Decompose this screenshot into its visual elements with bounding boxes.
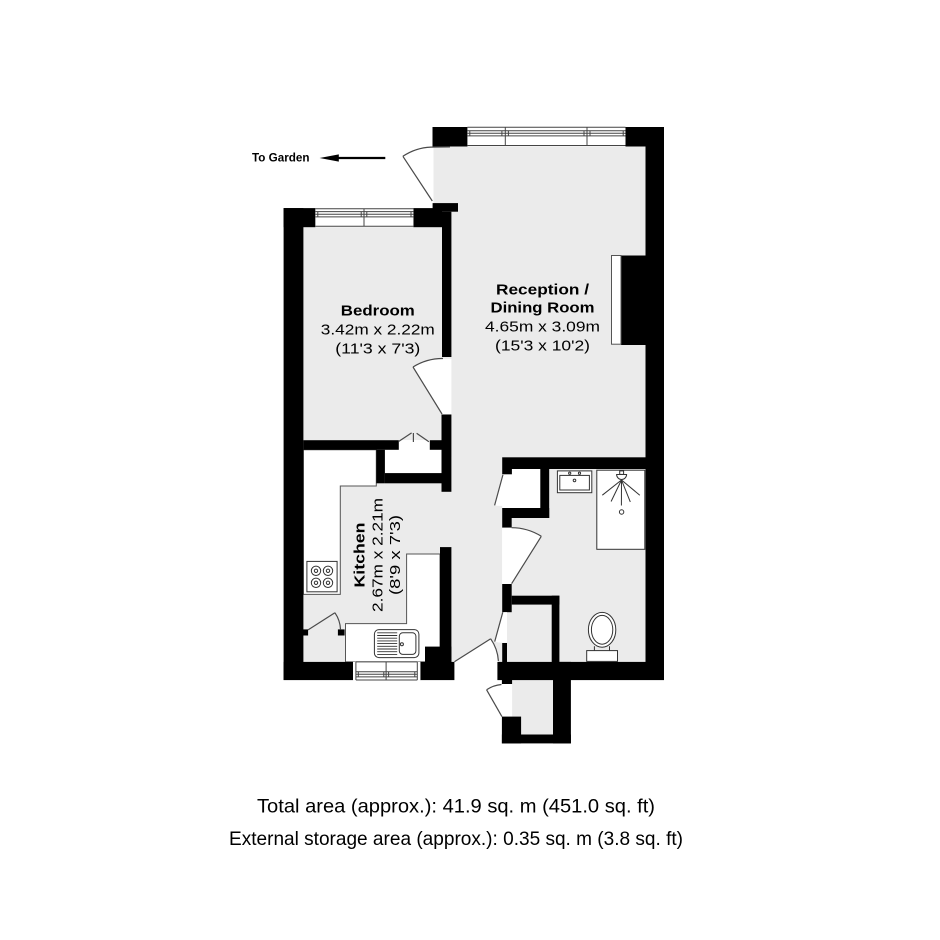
svg-text:(8'9 x 7'3): (8'9 x 7'3) xyxy=(387,515,404,595)
svg-text:Total area (approx.): 41.9 sq.: Total area (approx.): 41.9 sq. m (451.0 … xyxy=(257,796,655,818)
svg-text:External storage area (approx.: External storage area (approx.): 0.35 sq… xyxy=(229,828,683,850)
svg-text:Kitchen: Kitchen xyxy=(352,523,369,588)
svg-text:4.65m x 3.09m: 4.65m x 3.09m xyxy=(485,319,600,336)
svg-text:Bedroom: Bedroom xyxy=(341,302,415,319)
svg-text:3.42m x 2.22m: 3.42m x 2.22m xyxy=(321,321,435,338)
svg-text:Dining Room: Dining Room xyxy=(491,299,595,316)
svg-text:Reception /: Reception / xyxy=(496,282,590,299)
svg-text:(11'3 x 7'3): (11'3 x 7'3) xyxy=(335,340,420,357)
svg-text:(15'3 x 10'2): (15'3 x 10'2) xyxy=(495,338,590,355)
svg-text:To Garden: To Garden xyxy=(252,151,310,165)
svg-text:2.67m x 2.21m: 2.67m x 2.21m xyxy=(370,498,387,612)
